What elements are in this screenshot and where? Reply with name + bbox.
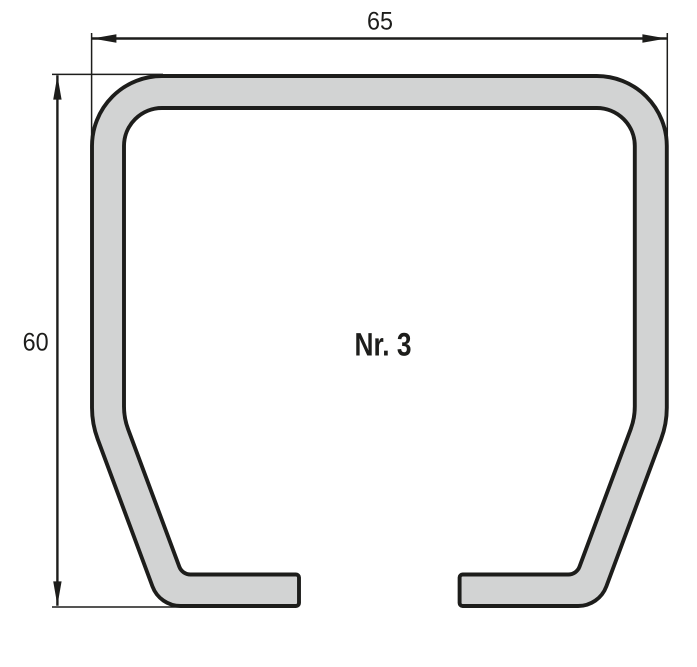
svg-text:Nr. 3: Nr. 3 xyxy=(355,327,412,363)
svg-text:60: 60 xyxy=(23,328,49,356)
svg-text:65: 65 xyxy=(367,8,393,36)
